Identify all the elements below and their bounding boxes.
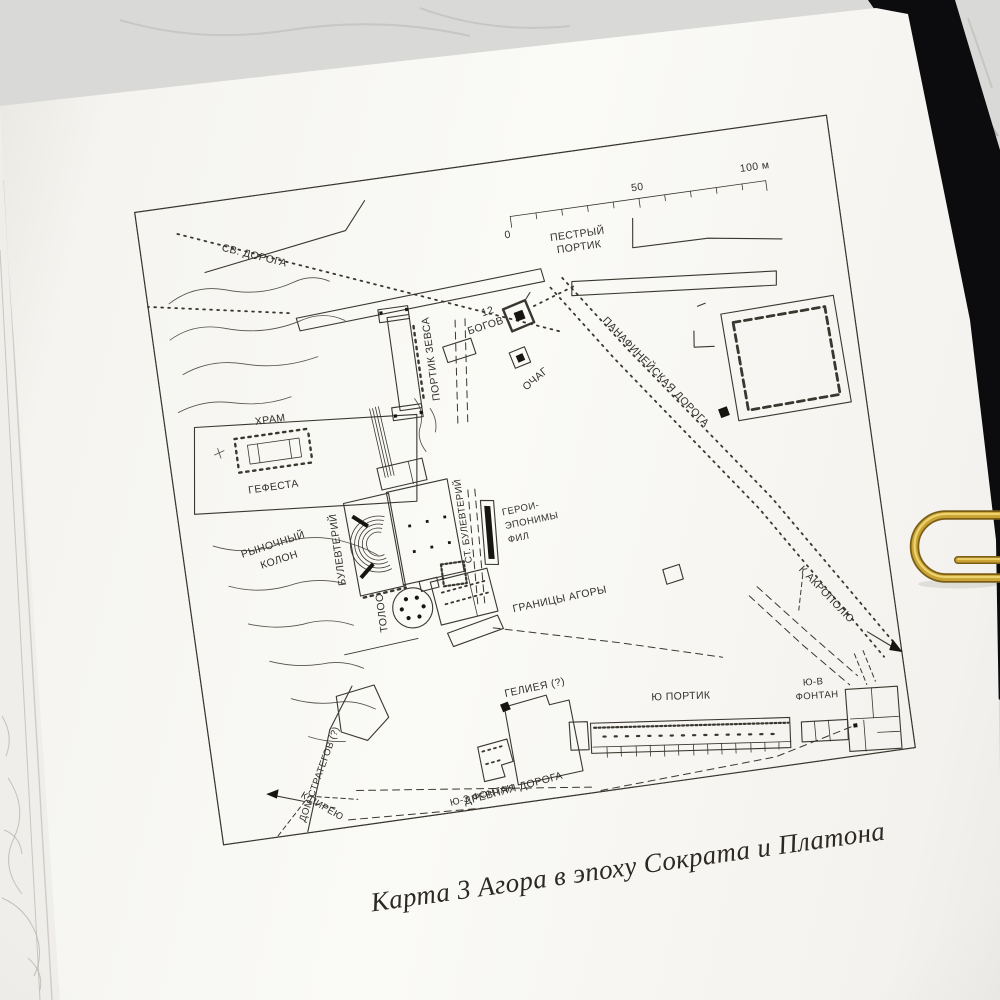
- label-temple-2: ГЕФЕСТА: [248, 478, 300, 497]
- label-agora-bounds: ГРАНИЦЫ АГОРЫ: [512, 583, 608, 615]
- scale-label-100: 100 м: [739, 159, 770, 175]
- label-bouleuterion: БУЛЕВТЕРИЙ: [326, 513, 349, 587]
- hearth-altar: ОЧАГ: [509, 344, 553, 395]
- label-south-stoa: Ю ПОРТИК: [651, 689, 711, 703]
- label-heliaia: ГЕЛИЕЯ (?): [503, 675, 566, 700]
- bouleuterion: БУЛЕВТЕРИЙ: [324, 493, 406, 602]
- paperclip-inner-wire: [958, 559, 1000, 560]
- label-panathenaic-way: ПАНАФИНЕЙСКАЯ ДОРОГА: [600, 314, 712, 429]
- court-building: [688, 285, 851, 425]
- label-se-fountain-2: ФОНТАН: [795, 689, 839, 703]
- sacred-road: СВ. ДОРОГА: [138, 183, 561, 388]
- tholos: ТОЛОС: [372, 567, 505, 657]
- mint-building: [841, 682, 906, 755]
- label-temple-1: ХРАМ: [254, 412, 286, 428]
- map-plate: 0 50 100 м ПЕСТРЫЙ ПОРТИК СВ. ДОРОГА: [134, 114, 943, 1000]
- map-border: [135, 115, 916, 845]
- scale-label-50: 50: [630, 181, 644, 195]
- se-fountain: Ю-В ФОНТАН: [793, 672, 851, 746]
- label-heroes-3: ФИЛ: [507, 531, 531, 546]
- label-to-acropolis: К АКРОПОЛЮ: [796, 564, 856, 626]
- panathenaic-way: ПАНАФИНЕЙСКАЯ ДОРОГА К АКРОПОЛЮ: [549, 238, 903, 695]
- heliaia: ГЕЛИЕЯ (?): [497, 675, 584, 786]
- scale-label-0: 0: [504, 229, 512, 242]
- eponymous-heroes-monument: ГЕРОИ- ЭПОНИМЫ ФИЛ: [462, 478, 570, 604]
- old-bouleuterion: СТ. БУЛЕВТЕРИЙ: [376, 453, 477, 593]
- label-hearth: ОЧАГ: [520, 365, 550, 393]
- paperclip: [900, 500, 1000, 600]
- paperclip-outer-wire: [915, 514, 1000, 578]
- label-se-fountain-1: Ю-В: [803, 676, 824, 688]
- stoa-of-zeus: ПОРТИК ЗЕВСА: [378, 297, 486, 435]
- misc-terrain-lines: [344, 638, 419, 654]
- agora-map: 0 50 100 м ПЕСТРЫЙ ПОРТИК СВ. ДОРОГА: [134, 114, 916, 845]
- ancient-road: ДРЕВНЯЯ ДОРОГА: [345, 721, 859, 827]
- label-tholos: ТОЛОС: [374, 593, 391, 633]
- scale-bar: 0 50 100 м: [499, 159, 775, 241]
- book-photo-scene: 0 50 100 м ПЕСТРЫЙ ПОРТИК СВ. ДОРОГА: [0, 0, 1000, 1000]
- south-stoa: Ю ПОРТИК: [565, 673, 794, 778]
- agora-boundary-marker: ГРАНИЦЫ АГОРЫ: [509, 564, 685, 615]
- market-hill-label: РЫНОЧНЫЙ КОЛОН: [238, 528, 310, 575]
- altar-of-twelve-gods: 12 БОГОВ: [463, 285, 582, 338]
